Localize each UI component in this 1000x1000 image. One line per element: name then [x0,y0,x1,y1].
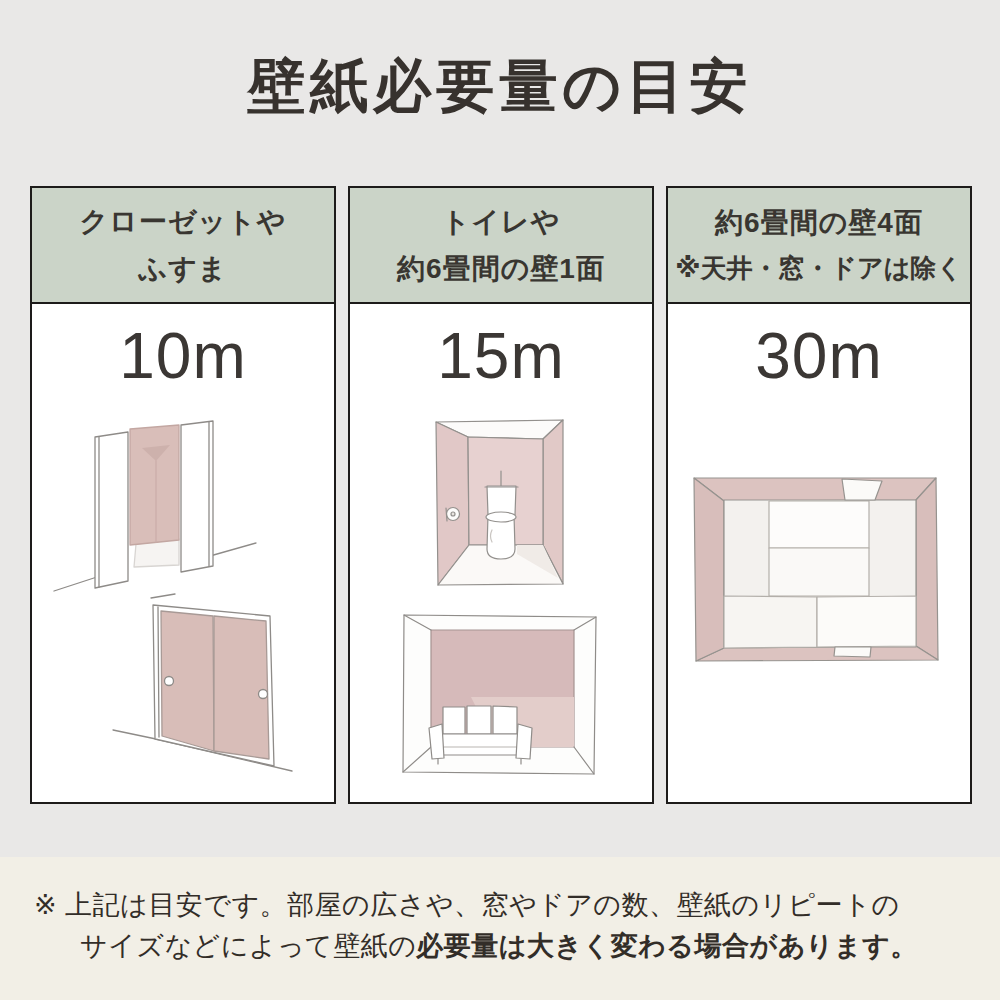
page-title: 壁紙必要量の目安 [0,0,1000,126]
column1-amount-label: 10m [32,324,334,388]
wallpaper-guide-infographic: 壁紙必要量の目安 クローゼットや ふすま 10m [0,0,1000,1000]
column1-header: クローゼットや ふすま [32,188,334,304]
column2-header-line2: 約6畳間の壁1面 [397,250,605,288]
column-closet-fusuma: クローゼットや ふすま 10m [30,186,336,804]
footnote-line1: ※ 上記は目安です。部屋の広さや、窓やドアの数、壁紙のリピートの [34,885,972,926]
column2-amount-label: 15m [350,324,652,388]
footnote-line2: サイズなどによって壁紙の必要量は大きく変わる場合があります。 [34,926,972,967]
closet-illustration [38,404,328,604]
column3-amount-label: 30m [668,324,970,388]
column-toilet-one-wall: トイレや 約6畳間の壁1面 15m [348,186,654,804]
columns-row: クローゼットや ふすま 10m [30,186,972,804]
column2-header: トイレや 約6畳間の壁1面 [350,188,652,304]
column1-header-line1: クローゼットや [80,203,287,241]
footnote-line1-text: ※ 上記は目安です。部屋の広さや、窓やドアの数、壁紙のリピートの [34,890,900,920]
footnote: ※ 上記は目安です。部屋の広さや、窓やドアの数、壁紙のリピートの サイズなどによ… [0,857,1000,1000]
footnote-line2-bold: 必要量は大きく変わる場合があります。 [416,931,917,961]
toilet-room-illustration [396,402,606,592]
column1-header-line2: ふすま [139,250,228,288]
footnote-line2-normal: サイズなどによって壁紙の [80,931,416,961]
room-four-walls-topview-illustration [684,448,954,678]
room-one-wall-sofa-illustration [386,597,616,797]
column2-header-line1: トイレや [442,203,561,241]
fusuma-sliding-doors-illustration [38,590,328,795]
column-four-walls: 約6畳間の壁4面 ※天井・窓・ドアは除く 30m [666,186,972,804]
column3-header-line2: ※天井・窓・ドアは除く [675,251,963,286]
column3-header-line1: 約6畳間の壁4面 [715,204,923,242]
column3-header: 約6畳間の壁4面 ※天井・窓・ドアは除く [668,188,970,304]
